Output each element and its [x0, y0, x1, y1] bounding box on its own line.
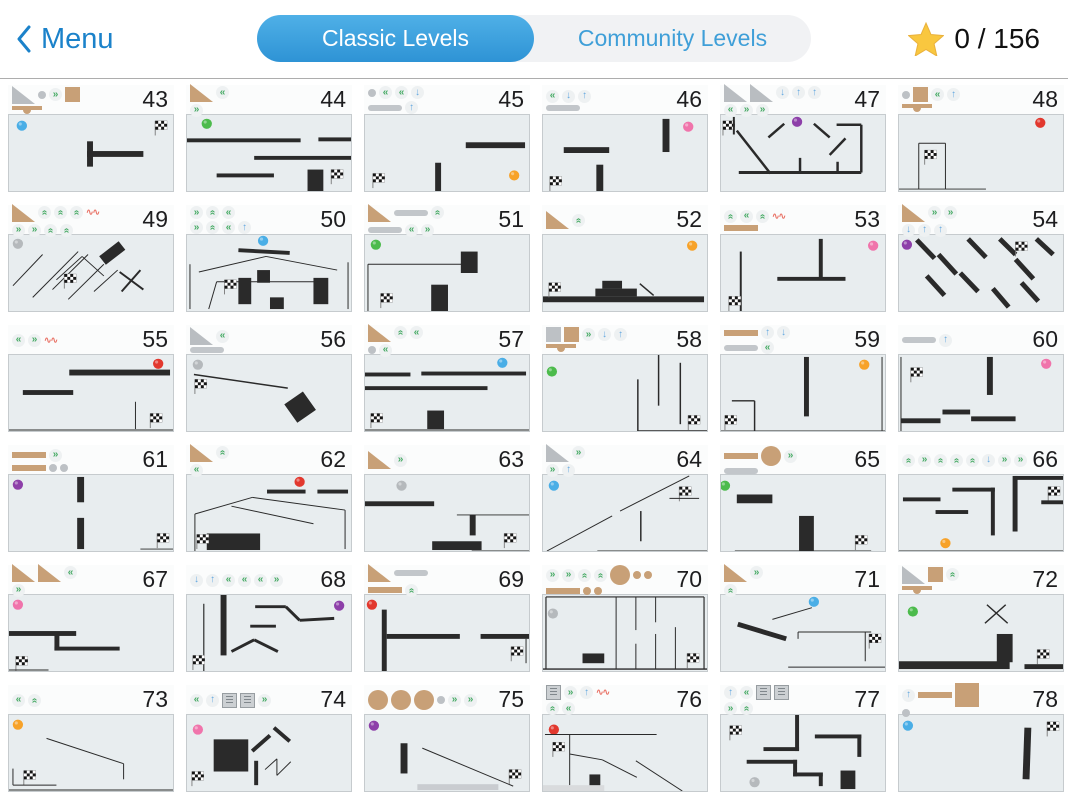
arrow-up-icon: «: [546, 702, 559, 715]
checkered-flag-icon: [195, 379, 207, 394]
level-number: 75: [498, 686, 524, 713]
level-cell-header: ↑60: [898, 325, 1064, 354]
arrow-up-blue-icon: ↑: [918, 224, 931, 237]
level-cell-header: «69: [364, 565, 530, 594]
level-cell-header: ««»51: [364, 205, 530, 234]
level-cell-header: »↓↑58: [542, 325, 708, 354]
arrow-down-blue-icon: ↓: [562, 90, 575, 103]
checkered-flag-icon: [553, 742, 565, 757]
tri-gray-icon: [546, 444, 569, 462]
seesaw-tan-icon: [12, 106, 42, 115]
tri-tan-icon: [368, 204, 391, 222]
arrow-left-icon: «: [379, 344, 392, 357]
arrow-left-icon: «: [12, 334, 25, 347]
level-cell-header: «↑»74: [186, 685, 352, 714]
level-preview: [720, 114, 886, 192]
bar-tan-icon: [724, 330, 758, 336]
arrow-left-icon: «: [724, 104, 737, 117]
squiggle-red-icon: ∿∿: [596, 687, 609, 698]
tri-gray-icon: [902, 566, 925, 584]
arrow-up-icon: «: [740, 702, 753, 715]
arrow-left-icon: «: [222, 206, 235, 219]
arrow-left-icon: «: [931, 88, 944, 101]
level-item-icons: «««: [368, 324, 423, 357]
arrow-right-icon: »: [546, 569, 559, 582]
squiggle-red-icon: ∿∿: [44, 335, 57, 346]
arrow-right-icon: »: [562, 569, 575, 582]
level-cell[interactable]: «««∿∿»»««49: [8, 205, 174, 312]
arrow-up-icon: «: [44, 224, 57, 237]
level-cell[interactable]: »»↓↑↑54: [898, 205, 1064, 312]
arrow-right-icon: »: [190, 206, 203, 219]
level-preview: [898, 714, 1064, 792]
tab-classic-levels[interactable]: Classic Levels: [257, 15, 534, 62]
dot-gray-icon: [368, 346, 376, 354]
spring-icon: [546, 685, 561, 700]
arrow-up-icon: «: [594, 569, 607, 582]
level-preview: [364, 474, 530, 552]
level-cell-header: »61: [8, 445, 174, 474]
arrow-left-icon: «: [222, 574, 235, 587]
level-cell-header: ««↓↑45: [364, 85, 530, 114]
bar-tan-icon: [368, 587, 402, 593]
dot-gray-icon: [49, 464, 57, 472]
level-cell-header: «56: [186, 325, 352, 354]
level-number: 66: [1032, 446, 1058, 473]
arrow-up-blue-icon: ↑: [238, 221, 251, 234]
tri-tan-icon: [190, 444, 213, 462]
level-preview: [364, 594, 530, 672]
level-cell[interactable]: «↑48: [898, 85, 1064, 192]
arrow-up-blue-icon: ↑: [947, 88, 960, 101]
level-item-icons: »»↓↑↑: [902, 204, 957, 237]
level-number: 57: [498, 326, 524, 353]
checkered-flag-icon: [1047, 722, 1059, 737]
checkered-flag-icon: [869, 634, 881, 649]
arrow-down-blue-icon: ↓: [190, 574, 203, 587]
star-icon: [908, 22, 944, 56]
level-number: 51: [498, 206, 524, 233]
checkered-flag-icon: [549, 283, 561, 298]
level-item-icons: »««»««↑: [190, 206, 251, 234]
level-item-icons: »↓↑: [546, 327, 627, 353]
level-number: 70: [676, 566, 702, 593]
level-preview: [720, 474, 886, 552]
arrow-up-icon: «: [28, 694, 41, 707]
checkered-flag-icon: [150, 413, 162, 428]
level-item-icons: «: [368, 564, 428, 597]
dot-gray-icon: [437, 696, 445, 704]
arrow-up-icon: «: [946, 568, 959, 581]
level-preview: [364, 234, 530, 312]
circle-tan-icon: [610, 565, 630, 585]
arrow-down-blue-icon: ↓: [776, 86, 789, 99]
bar-gray-icon: [368, 105, 402, 111]
arrow-up-blue-icon: ↑: [562, 464, 575, 477]
level-cell[interactable]: «»«««↓»»66: [898, 445, 1064, 552]
arrow-right-icon: »: [572, 446, 585, 459]
arrow-left-icon: «: [410, 326, 423, 339]
level-cell-header: «52: [542, 205, 708, 234]
bar-gray-icon: [902, 337, 936, 343]
checkered-flag-icon: [911, 368, 923, 383]
arrow-right-icon: »: [784, 450, 797, 463]
bar-gray-icon: [724, 468, 758, 474]
level-cell[interactable]: «52: [542, 205, 708, 312]
arrow-left-icon: «: [216, 86, 229, 99]
level-number: 62: [320, 446, 346, 473]
dot-tan-icon: [633, 571, 641, 579]
level-cell[interactable]: «»44: [186, 85, 352, 192]
arrow-left-icon: «: [395, 86, 408, 99]
level-preview: [186, 474, 352, 552]
level-item-icons: ↑↓«: [724, 326, 790, 354]
level-tabs: Classic Levels Community Levels: [257, 15, 811, 62]
level-preview: [542, 114, 708, 192]
level-cell-header: »»↑64: [542, 445, 708, 474]
level-cell[interactable]: «»67: [8, 565, 174, 672]
checkered-flag-icon: [371, 413, 383, 428]
level-number: 76: [676, 686, 702, 713]
tri-tan-icon: [190, 84, 213, 102]
level-cell[interactable]: ↑↓«59: [720, 325, 886, 432]
level-cell[interactable]: »»↑64: [542, 445, 708, 552]
circle-tan-icon: [368, 690, 388, 710]
arrow-up-blue-icon: ↑: [761, 326, 774, 339]
checkered-flag-icon: [730, 726, 742, 741]
checkered-flag-icon: [725, 415, 737, 430]
arrow-up-icon: «: [206, 206, 219, 219]
checkered-flag-icon: [157, 533, 169, 548]
level-preview: [720, 354, 886, 432]
arrow-up-icon: «: [206, 221, 219, 234]
level-preview: [364, 354, 530, 432]
arrow-right-icon: »: [564, 686, 577, 699]
level-number: 52: [676, 206, 702, 233]
level-item-icons: »«: [724, 564, 763, 597]
level-item-icons: «»: [190, 84, 229, 117]
arrow-right-icon: »: [448, 694, 461, 707]
arrow-right-icon: »: [394, 454, 407, 467]
arrow-up-blue-icon: ↑: [405, 101, 418, 114]
arrow-up-blue-icon: ↑: [206, 574, 219, 587]
level-item-icons: «««∿∿: [724, 210, 785, 231]
level-number: 68: [320, 566, 346, 593]
level-cell[interactable]: »»««70: [542, 565, 708, 672]
circle-tan-icon: [761, 446, 781, 466]
arrow-right-icon: »: [12, 224, 25, 237]
level-cell[interactable]: «↑»74: [186, 685, 352, 792]
level-preview: [186, 714, 352, 792]
arrow-left-icon: «: [740, 686, 753, 699]
level-number: 74: [320, 686, 346, 713]
arrow-right-icon: »: [546, 464, 559, 477]
arrow-up-blue-icon: ↑: [578, 90, 591, 103]
checkered-flag-icon: [381, 293, 393, 308]
level-cell-header: «»«««↓»»66: [898, 445, 1064, 474]
level-cell-header: »»75: [364, 685, 530, 714]
level-preview: [364, 114, 530, 192]
bar-tan-icon: [918, 692, 952, 698]
level-cell-header: ↓↑↑«»»47: [720, 85, 886, 114]
arrow-up-blue-icon: ↑: [934, 224, 947, 237]
arrow-up-icon: «: [950, 454, 963, 467]
checkered-flag-icon: [16, 656, 28, 671]
level-cell[interactable]: »»75: [364, 685, 530, 792]
arrow-up-icon: «: [572, 214, 585, 227]
level-cell[interactable]: »43: [8, 85, 174, 192]
arrow-right-icon: »: [740, 104, 753, 117]
back-chevron-icon: [16, 25, 32, 53]
dot-gray-icon: [902, 709, 910, 717]
bar-tan-icon: [12, 452, 46, 458]
level-item-icons: «»: [12, 564, 77, 597]
arrow-left-icon: «: [562, 702, 575, 715]
spring-icon: [756, 685, 771, 700]
level-cell[interactable]: ↑«»«77: [720, 685, 886, 792]
level-cell[interactable]: ↓↑«««»68: [186, 565, 352, 672]
level-cell[interactable]: «69: [364, 565, 530, 672]
arrow-up-icon: «: [724, 584, 737, 597]
level-number: 67: [142, 566, 168, 593]
level-item-icons: «↓↑: [546, 90, 591, 111]
arrow-down-blue-icon: ↓: [902, 224, 915, 237]
level-cell[interactable]: «»∿∿55: [8, 325, 174, 432]
arrow-right-icon: »: [28, 334, 41, 347]
bar-gray-icon: [724, 345, 758, 351]
arrow-right-icon: »: [756, 104, 769, 117]
level-item-icons: ««: [12, 694, 41, 707]
arrow-right-icon: »: [944, 206, 957, 219]
checkered-flag-icon: [855, 535, 867, 550]
arrow-up-icon: «: [60, 224, 73, 237]
level-cell[interactable]: «↓↑46: [542, 85, 708, 192]
checkered-flag-icon: [688, 415, 700, 430]
level-cell[interactable]: ↑78: [898, 685, 1064, 792]
arrow-left-icon: «: [740, 210, 753, 223]
level-cell[interactable]: «72: [898, 565, 1064, 672]
level-cell[interactable]: ««»51: [364, 205, 530, 312]
level-cell-header: »↑∿∿««76: [542, 685, 708, 714]
level-number: 43: [142, 86, 168, 113]
level-cell[interactable]: «««57: [364, 325, 530, 432]
arrow-up-blue-icon: ↑: [792, 86, 805, 99]
level-cell[interactable]: ↑60: [898, 325, 1064, 432]
level-cell[interactable]: »«71: [720, 565, 886, 672]
checkered-flag-icon: [511, 647, 523, 662]
arrow-left-icon: «: [216, 330, 229, 343]
checkered-flag-icon: [1048, 487, 1060, 502]
arrow-left-icon: «: [379, 86, 392, 99]
level-item-icons: ↓↑«««»: [190, 574, 283, 587]
dot-gray-icon: [60, 464, 68, 472]
bar-gray-icon: [190, 347, 224, 353]
level-preview: [186, 234, 352, 312]
level-item-icons: ↑: [902, 683, 979, 717]
level-cell-header: «««∿∿53: [720, 205, 886, 234]
level-preview: [8, 354, 174, 432]
level-preview: [720, 594, 886, 672]
bar-gray-icon: [394, 210, 428, 216]
level-item-icons: »↑∿∿««: [546, 685, 609, 715]
arrow-up-blue-icon: ↑: [808, 86, 821, 99]
level-cell[interactable]: ««62: [186, 445, 352, 552]
checkered-flag-icon: [509, 770, 521, 785]
level-item-icons: »»: [368, 690, 477, 710]
level-number: 44: [320, 86, 346, 113]
spring-icon: [240, 693, 255, 708]
arrow-right-icon: »: [1014, 454, 1027, 467]
level-number: 65: [854, 446, 880, 473]
top-bar: Menu Classic Levels Community Levels 0 /…: [0, 0, 1068, 79]
level-preview: [898, 474, 1064, 552]
dot-tan-icon: [644, 571, 652, 579]
level-cell-header: ↑«»«77: [720, 685, 886, 714]
arrow-left-icon: «: [190, 694, 203, 707]
level-item-icons: »: [724, 446, 797, 474]
spring-icon: [222, 693, 237, 708]
squiggle-red-icon: ∿∿: [772, 211, 785, 222]
level-item-icons: ↓↑↑«»»: [724, 84, 821, 117]
arrow-right-icon: »: [258, 694, 271, 707]
checkered-flag-icon: [24, 771, 36, 786]
level-cell-header: «««∿∿»»««49: [8, 205, 174, 234]
level-number: 55: [142, 326, 168, 353]
checkered-flag-icon: [504, 533, 516, 548]
level-preview: [8, 474, 174, 552]
arrow-right-icon: »: [928, 206, 941, 219]
checkered-flag-icon: [550, 176, 562, 191]
bar-gray-icon: [546, 105, 580, 111]
checkered-flag-icon: [729, 296, 741, 311]
level-number: 53: [854, 206, 880, 233]
level-cell[interactable]: «««∿∿53: [720, 205, 886, 312]
arrow-up-icon: «: [902, 454, 915, 467]
level-number: 69: [498, 566, 524, 593]
level-number: 49: [142, 206, 168, 233]
level-preview: [186, 354, 352, 432]
arrow-right-icon: »: [28, 224, 41, 237]
level-number: 78: [1032, 686, 1058, 713]
level-item-icons: «↑»: [190, 693, 271, 708]
arrow-up-icon: «: [38, 206, 51, 219]
level-item-icons: «««∿∿»»««: [12, 204, 99, 237]
level-cell[interactable]: ↓↑↑«»»47: [720, 85, 886, 192]
level-item-icons: »»↑: [546, 444, 585, 477]
arrow-left-icon: «: [238, 574, 251, 587]
arrow-up-icon: «: [54, 206, 67, 219]
level-cell-header: »63: [364, 445, 530, 474]
level-cell[interactable]: »61: [8, 445, 174, 552]
level-cell-header: »43: [8, 85, 174, 114]
level-number: 61: [142, 446, 168, 473]
level-preview: [898, 594, 1064, 672]
level-preview: [186, 594, 352, 672]
arrow-down-blue-icon: ↓: [982, 454, 995, 467]
level-number: 63: [498, 446, 524, 473]
level-preview: [542, 594, 708, 672]
level-cell[interactable]: «56: [186, 325, 352, 432]
level-number: 77: [854, 686, 880, 713]
level-preview: [720, 714, 886, 792]
circle-tan-icon: [414, 690, 434, 710]
tri-tan-icon: [368, 564, 391, 582]
seesaw-tan-icon: [902, 586, 932, 595]
level-item-icons: ↑: [902, 334, 952, 347]
level-cell[interactable]: »65: [720, 445, 886, 552]
arrow-up-icon: «: [934, 454, 947, 467]
arrow-up-icon: «: [431, 206, 444, 219]
level-number: 64: [676, 446, 702, 473]
arrow-up-icon: «: [70, 206, 83, 219]
level-number: 60: [1032, 326, 1058, 353]
arrow-right-icon: »: [421, 224, 434, 237]
checkered-flag-icon: [925, 150, 937, 165]
arrow-up-blue-icon: ↑: [724, 686, 737, 699]
tri-tan-icon: [38, 564, 61, 582]
arrow-right-icon: »: [12, 584, 25, 597]
arrow-left-icon: «: [190, 464, 203, 477]
arrow-up-icon: «: [394, 326, 407, 339]
checkered-flag-icon: [225, 280, 237, 295]
level-number: 72: [1032, 566, 1058, 593]
level-cell[interactable]: ««73: [8, 685, 174, 792]
circle-tan-icon: [391, 690, 411, 710]
level-cell-header: ««73: [8, 685, 174, 714]
arrow-right-icon: »: [49, 449, 62, 462]
arrow-up-icon: «: [578, 569, 591, 582]
tri-tan-icon: [724, 564, 747, 582]
level-preview: [542, 234, 708, 312]
squiggle-red-icon: ∿∿: [86, 207, 99, 218]
dot-gray-icon: [38, 91, 46, 99]
level-item-icons: «: [546, 211, 585, 229]
level-cell-header: ↑↓«59: [720, 325, 886, 354]
square-tan-icon: [928, 567, 943, 582]
menu-button[interactable]: Menu: [16, 0, 114, 78]
tri-tan-icon: [902, 204, 925, 222]
level-number: 56: [320, 326, 346, 353]
level-cell[interactable]: ««↓↑45: [364, 85, 530, 192]
checkered-flag-icon: [331, 170, 343, 185]
arrow-up-blue-icon: ↑: [939, 334, 952, 347]
level-cell[interactable]: »63: [364, 445, 530, 552]
arrow-down-blue-icon: ↓: [777, 326, 790, 339]
level-item-icons: ↑«»«: [724, 685, 789, 715]
arrow-right-icon: »: [582, 328, 595, 341]
tri-gray-icon: [724, 84, 747, 102]
dot-tan-icon: [594, 587, 602, 595]
square-tan-icon: [564, 327, 579, 342]
level-cell[interactable]: »↓↑58: [542, 325, 708, 432]
arrow-up-icon: «: [405, 584, 418, 597]
arrow-left-icon: «: [761, 341, 774, 354]
arrow-up-blue-icon: ↑: [902, 689, 915, 702]
level-cell-header: «72: [898, 565, 1064, 594]
level-cell[interactable]: »««»««↑50: [186, 205, 352, 312]
arrow-left-icon: «: [222, 221, 235, 234]
level-cell-header: «»44: [186, 85, 352, 114]
tab-community-levels[interactable]: Community Levels: [534, 15, 811, 62]
star-count-label: 0 / 156: [954, 23, 1040, 55]
level-number: 71: [854, 566, 880, 593]
bar-tan-icon: [12, 465, 46, 471]
level-cell[interactable]: »↑∿∿««76: [542, 685, 708, 792]
level-item-icons: «»«««↓»»: [902, 454, 1027, 467]
level-item-icons: «: [190, 327, 229, 353]
arrow-right-icon: »: [464, 694, 477, 707]
tri-tan-icon: [546, 211, 569, 229]
